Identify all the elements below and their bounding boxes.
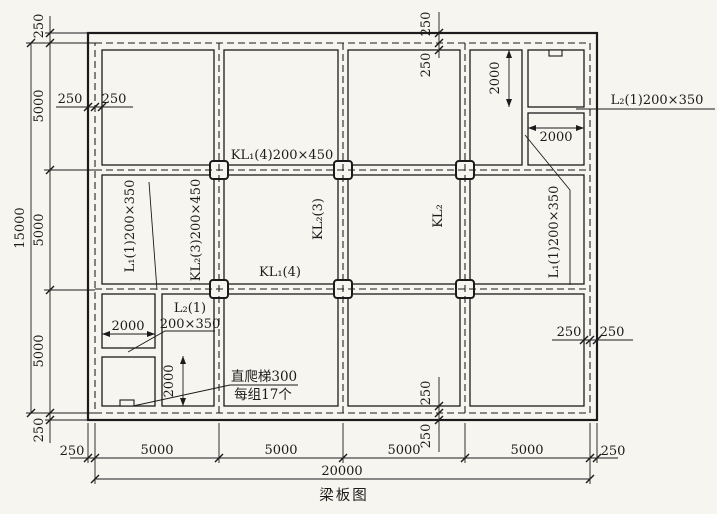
label-kl1-4-top: KL₁(4)200×450 [231,148,334,163]
dim-left-250-top: 250 [32,14,47,39]
room-bottom-left-lower [102,357,155,406]
dim-bottom-5000-1: 5000 [140,443,173,458]
dim-top-left-250-a: 250 [58,92,83,107]
room-top-right-upper [528,50,584,107]
dim-room-2000-bl-v: 2000 [162,364,177,397]
ladder-annotation: 直爬梯300 每组17个 [231,369,297,403]
dim-bottom-250-right: 250 [601,444,626,459]
dim-bottom-250-left: 250 [60,444,85,459]
dim-left-250-bottom: 250 [32,418,47,443]
dim-room-2000-bl-h: 2000 [111,319,144,334]
ladder-note-line1: 直爬梯300 [231,369,297,385]
dim-top-center-250-b: 250 [419,53,434,78]
dimension-labels: 250 5000 5000 5000 250 15000 250 5000 50… [13,12,625,479]
label-l2-bottom-left-2: 200×350 [160,317,221,332]
panel-r1c3 [348,50,460,165]
dim-left-5000-2: 5000 [32,213,47,246]
panel-r2c4 [470,175,584,284]
ladder-note-line2: 每组17个 [234,387,292,403]
label-kl2: KL₂ [431,204,446,228]
label-kl1-4-mid: KL₁(4) [259,265,301,280]
label-l2-bottom-left-1: L₂(1) [174,301,206,316]
ladder-symbol [120,400,134,406]
drawing-title: 梁板图 [319,486,369,504]
beam-centerlines [95,43,590,413]
dim-bottom-5000-2: 5000 [264,443,297,458]
beam-slab-plan-sheet: 250 5000 5000 5000 250 15000 250 5000 50… [0,0,717,514]
leader-l1-left [149,182,157,290]
dim-left-5000-3: 5000 [32,334,47,367]
dim-bottom-5000-4: 5000 [510,443,543,458]
beam-slab-plan-drawing: 250 5000 5000 5000 250 15000 250 5000 50… [0,0,717,514]
leader-lines [128,109,715,406]
panel-r1c1 [102,50,214,165]
dim-top-center-250-a: 250 [419,12,434,37]
hatch-opening-symbol [549,50,562,56]
dim-bottom-center-250-b: 250 [419,424,434,449]
columns [210,161,474,298]
dim-bottom-center-250-a: 250 [419,381,434,406]
dim-right-250-a: 250 [557,325,582,340]
dim-top-left-250-b: 250 [102,92,127,107]
label-kl2-3-full: KL₂(3)200×450 [189,179,204,282]
dim-room-2000-tr-v: 2000 [488,61,503,94]
dim-left-total-15000: 15000 [13,207,28,248]
panel-r2c3 [348,175,460,284]
dim-bottom-total-20000: 20000 [321,464,362,479]
dim-left-5000-1: 5000 [32,89,47,122]
dim-bottom-5000-3: 5000 [387,443,420,458]
dim-right-250-b: 250 [600,325,625,340]
label-l2-top-right: L₂(1)200×350 [611,93,704,108]
label-l1-left: L₁(1)200×350 [123,180,138,273]
panel-r3c4 [470,294,584,406]
dimension-lines [31,16,633,479]
label-kl2-3: KL₂(3) [311,198,326,240]
dim-room-2000-tr-h: 2000 [539,130,572,145]
label-l1-right: L₁(1)200×350 [547,186,562,279]
panel-r3c3 [348,294,460,406]
